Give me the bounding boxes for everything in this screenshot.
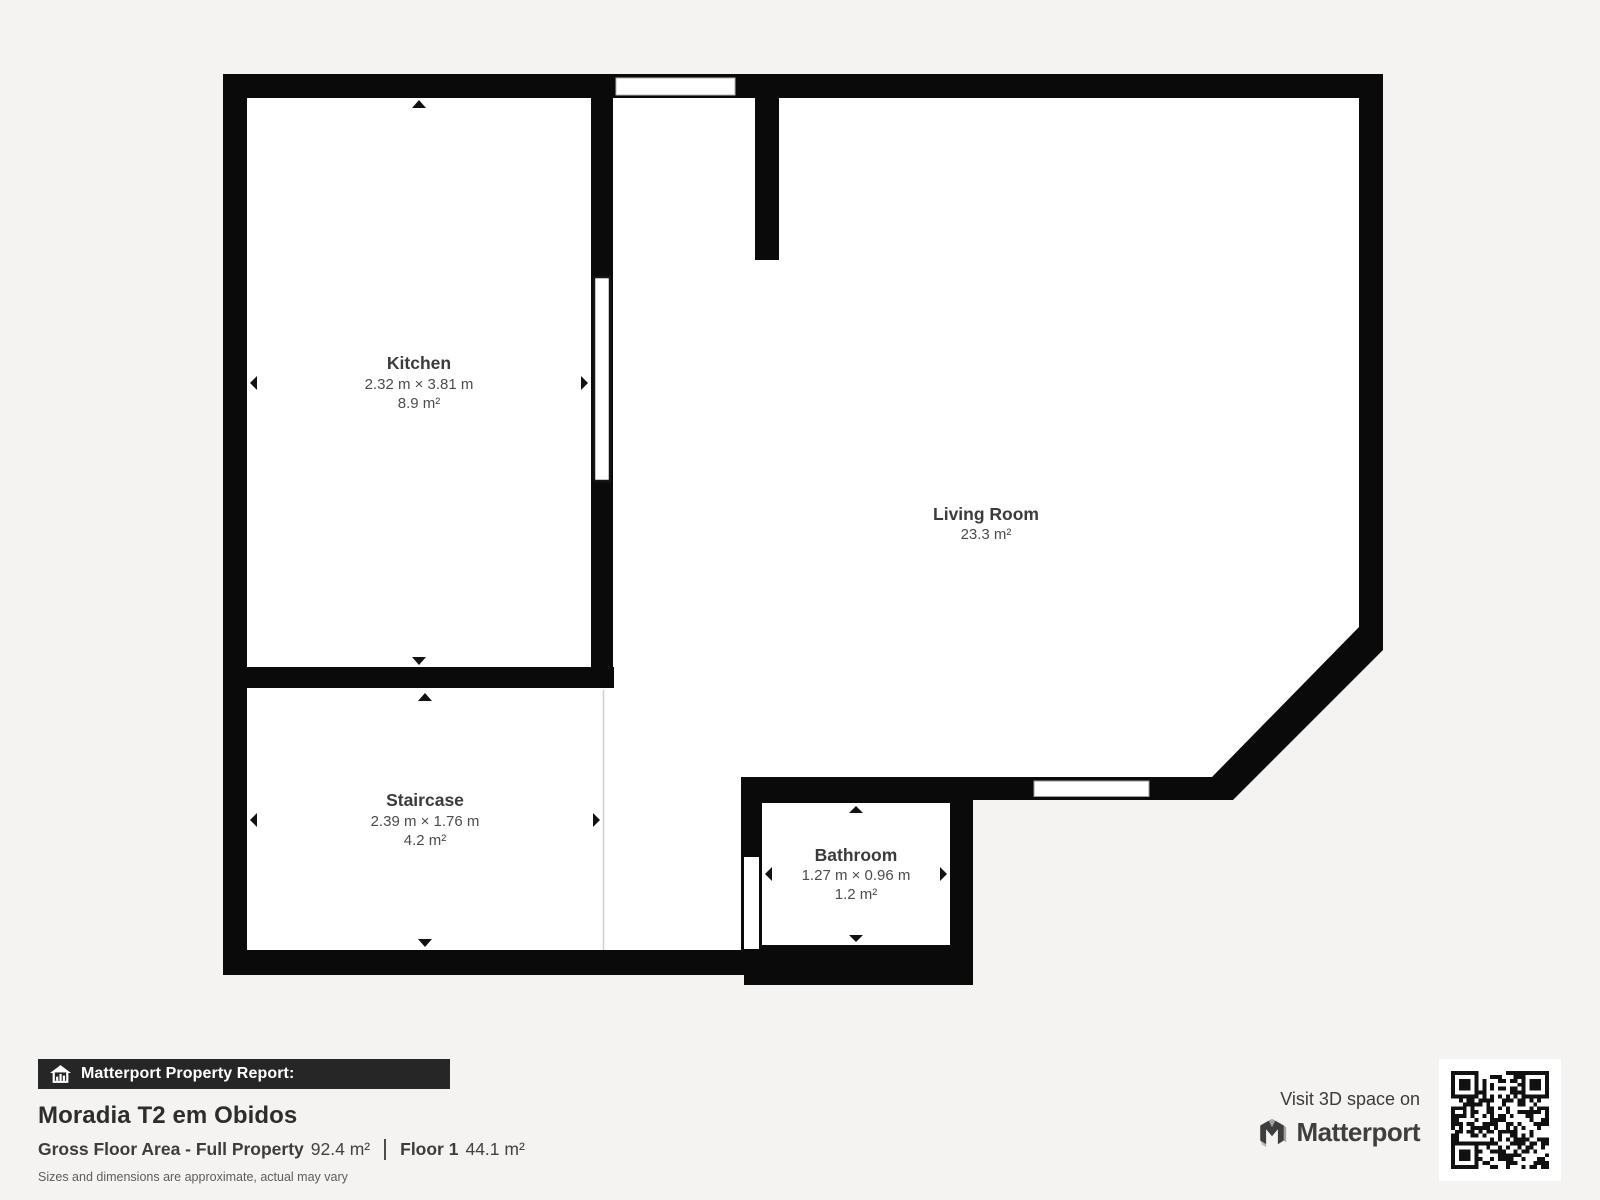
qr-code xyxy=(1439,1059,1561,1181)
report-banner: Matterport Property Report: xyxy=(38,1059,450,1089)
visit-3d-text: Visit 3D space on xyxy=(1257,1089,1420,1110)
gross-floor-area-label: Gross Floor Area - Full Property xyxy=(38,1139,304,1160)
room-area: 4.2 m² xyxy=(404,832,447,849)
room-name: Bathroom xyxy=(815,845,898,865)
floor-label: Floor 1 xyxy=(400,1139,458,1160)
kitchen-window xyxy=(594,277,610,481)
matterport-m-icon xyxy=(1257,1118,1287,1148)
visit-3d-block: Visit 3D space on Matterport xyxy=(1257,1089,1420,1148)
stats-divider xyxy=(384,1139,386,1160)
living-room-window xyxy=(1034,781,1149,797)
room-dimensions: 2.32 m × 3.81 m xyxy=(365,376,474,393)
room-area: 23.3 m² xyxy=(961,526,1012,543)
kitchen-staircase-wall xyxy=(223,667,614,688)
room-area: 8.9 m² xyxy=(398,395,441,412)
room-dimensions: 2.39 m × 1.76 m xyxy=(371,813,480,830)
room-name: Staircase xyxy=(386,790,464,810)
gross-floor-area-value: 92.4 m² xyxy=(311,1139,370,1160)
property-report-footer: Matterport Property Report: Moradia T2 e… xyxy=(38,1059,525,1184)
house-chart-icon xyxy=(50,1065,71,1083)
bathroom-door-opening xyxy=(744,857,759,949)
property-title: Moradia T2 em Obidos xyxy=(38,1102,525,1130)
matterport-brand: Matterport xyxy=(1257,1117,1420,1148)
floor-plan: Kitchen 2.32 m × 3.81 m 8.9 m² Living Ro… xyxy=(0,0,1600,1010)
floor-value: 44.1 m² xyxy=(465,1139,524,1160)
room-dimensions: 1.27 m × 0.96 m xyxy=(802,867,911,884)
room-name: Kitchen xyxy=(387,353,451,373)
disclaimer: Sizes and dimensions are approximate, ac… xyxy=(38,1170,525,1184)
entrance-door-opening xyxy=(616,78,735,95)
matterport-wordmark: Matterport xyxy=(1296,1117,1420,1148)
entry-partial-wall xyxy=(755,98,779,260)
floor-area-stats: Gross Floor Area - Full Property 92.4 m²… xyxy=(38,1139,525,1160)
room-area: 1.2 m² xyxy=(835,886,878,903)
room-name: Living Room xyxy=(933,504,1039,524)
report-banner-label: Matterport Property Report: xyxy=(81,1065,294,1083)
